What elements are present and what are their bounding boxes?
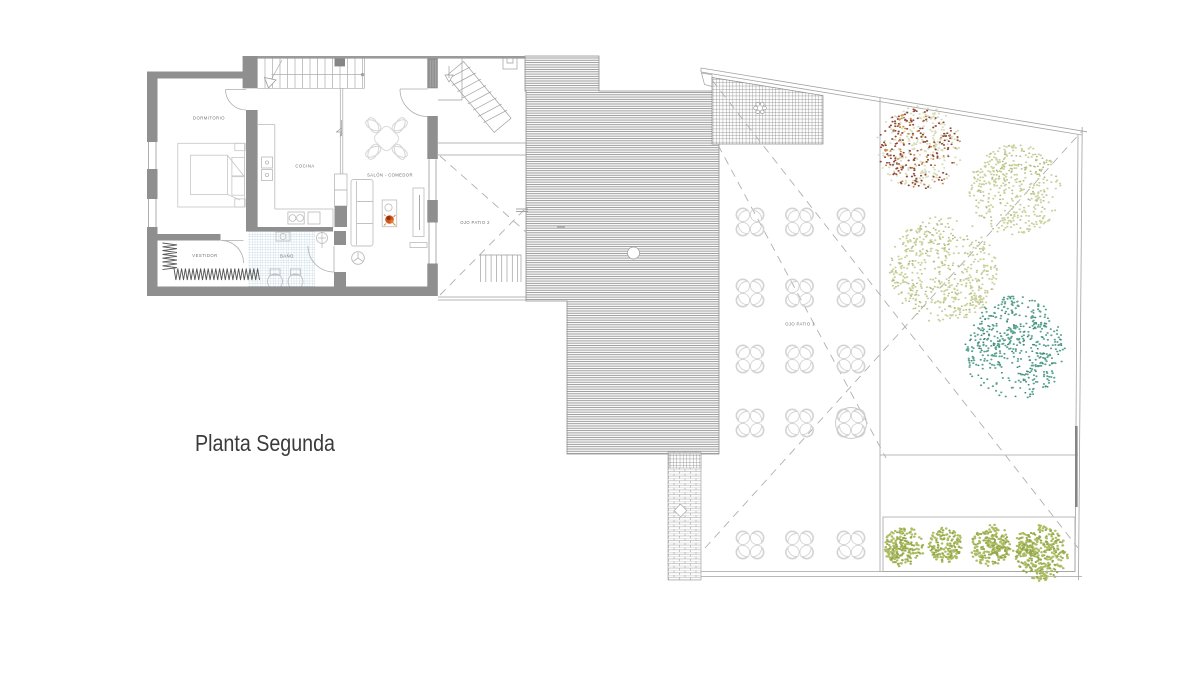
svg-text:DORMITORIO: DORMITORIO [193,116,225,121]
svg-text:COCINA: COCINA [295,164,314,169]
svg-text:Planta Segunda: Planta Segunda [195,430,336,456]
svg-text:OJO PATIO 1: OJO PATIO 1 [785,322,815,327]
svg-text:BAÑO: BAÑO [280,254,294,259]
svg-text:VESTIDOR: VESTIDOR [192,253,217,258]
svg-text:OJO PATIO 2: OJO PATIO 2 [460,220,490,225]
svg-text:SALÓN - COMEDOR: SALÓN - COMEDOR [367,173,413,178]
